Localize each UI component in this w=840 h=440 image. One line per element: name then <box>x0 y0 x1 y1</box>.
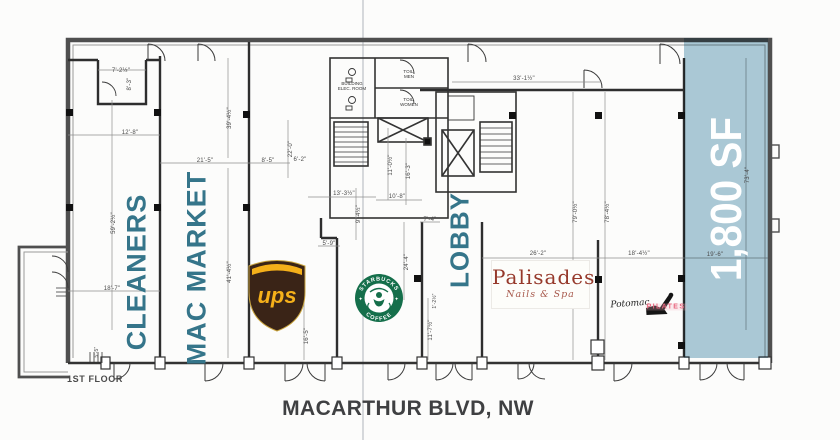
dimension-label: 11'-0½" <box>388 154 394 175</box>
dimension-label: 11'-7½" <box>428 319 434 340</box>
core-label-toilet-women: TOIL. WOMEN <box>398 97 420 107</box>
starbucks-star-left: ✦ <box>359 297 363 303</box>
floor-plan: STARBUCKS COFFEE ✦ ✦ ups 1 <box>0 0 840 440</box>
palisades-subtitle: Nails & Spa <box>492 289 589 300</box>
dimension-label: 5'-9" <box>323 241 336 247</box>
dimension-label: 21'-5" <box>197 158 213 164</box>
dimension-label: 16'-5" <box>304 328 310 344</box>
dimension-label: 78'-4½" <box>605 201 611 223</box>
core-label-toilet-men: TOIL. MEN <box>398 69 420 79</box>
dimension-label: 41'-4½" <box>227 261 233 283</box>
storefront <box>56 288 771 370</box>
street-label: MACARTHUR BLVD, NW <box>282 397 534 421</box>
dimension-label: 16'-3" <box>406 163 412 179</box>
dimension-label: 18'-7" <box>104 286 120 292</box>
dimension-label: 6'-2" <box>294 157 307 163</box>
dimension-label: 10'-8" <box>389 194 405 200</box>
dimension-label: 12'-8" <box>122 130 138 136</box>
dimension-label: 26'-2" <box>530 251 546 257</box>
door-swings-front <box>114 363 744 381</box>
dimension-label: 24'-4" <box>404 254 410 270</box>
core-label-elec-room: BUILDING ELEC. ROOM <box>337 81 367 91</box>
dimension-label: 9'-4½" <box>356 205 362 223</box>
pilates-wordmark: PILATES <box>646 304 687 311</box>
dimension-label: 8'-5" <box>262 158 275 164</box>
dimension-label: 39'-4½" <box>227 107 233 129</box>
tenant-label-mac-market: MAC MARKET <box>182 171 213 365</box>
dimension-label: 13'-3½" <box>333 191 355 197</box>
dimension-label: 22'-0" <box>288 141 294 157</box>
dimension-label: 19'-6" <box>707 252 723 258</box>
dimension-label: 18'-4½" <box>628 251 650 257</box>
palisades-logo: Palisades Nails & Spa <box>492 261 589 308</box>
dimension-label: 7'-2½" <box>112 68 130 74</box>
dimension-label: 73'-4" <box>745 167 751 183</box>
dimension-label: 1'-2½" <box>432 293 438 308</box>
dimension-label: 33'-1½" <box>513 76 535 82</box>
tenant-label-lobby: LOBBY <box>445 192 476 288</box>
dimension-label: 59'-2½" <box>111 212 117 234</box>
dimension-label: 5'-5" <box>94 347 100 358</box>
palisades-name: Palisades <box>492 265 589 289</box>
ups-wordmark: ups <box>257 283 296 308</box>
dimension-label: 79'-0½" <box>573 201 579 223</box>
starbucks-logo: STARBUCKS COFFEE ✦ ✦ <box>355 274 403 323</box>
dimension-label: 8'-3" <box>127 78 133 91</box>
tenant-label-cleaners: CLEANERS <box>122 194 153 351</box>
ups-logo: ups <box>249 261 305 332</box>
dimension-label: 7'-4" <box>424 217 437 223</box>
floor-label: 1ST FLOOR <box>67 374 123 384</box>
starbucks-star-right: ✦ <box>395 297 399 303</box>
